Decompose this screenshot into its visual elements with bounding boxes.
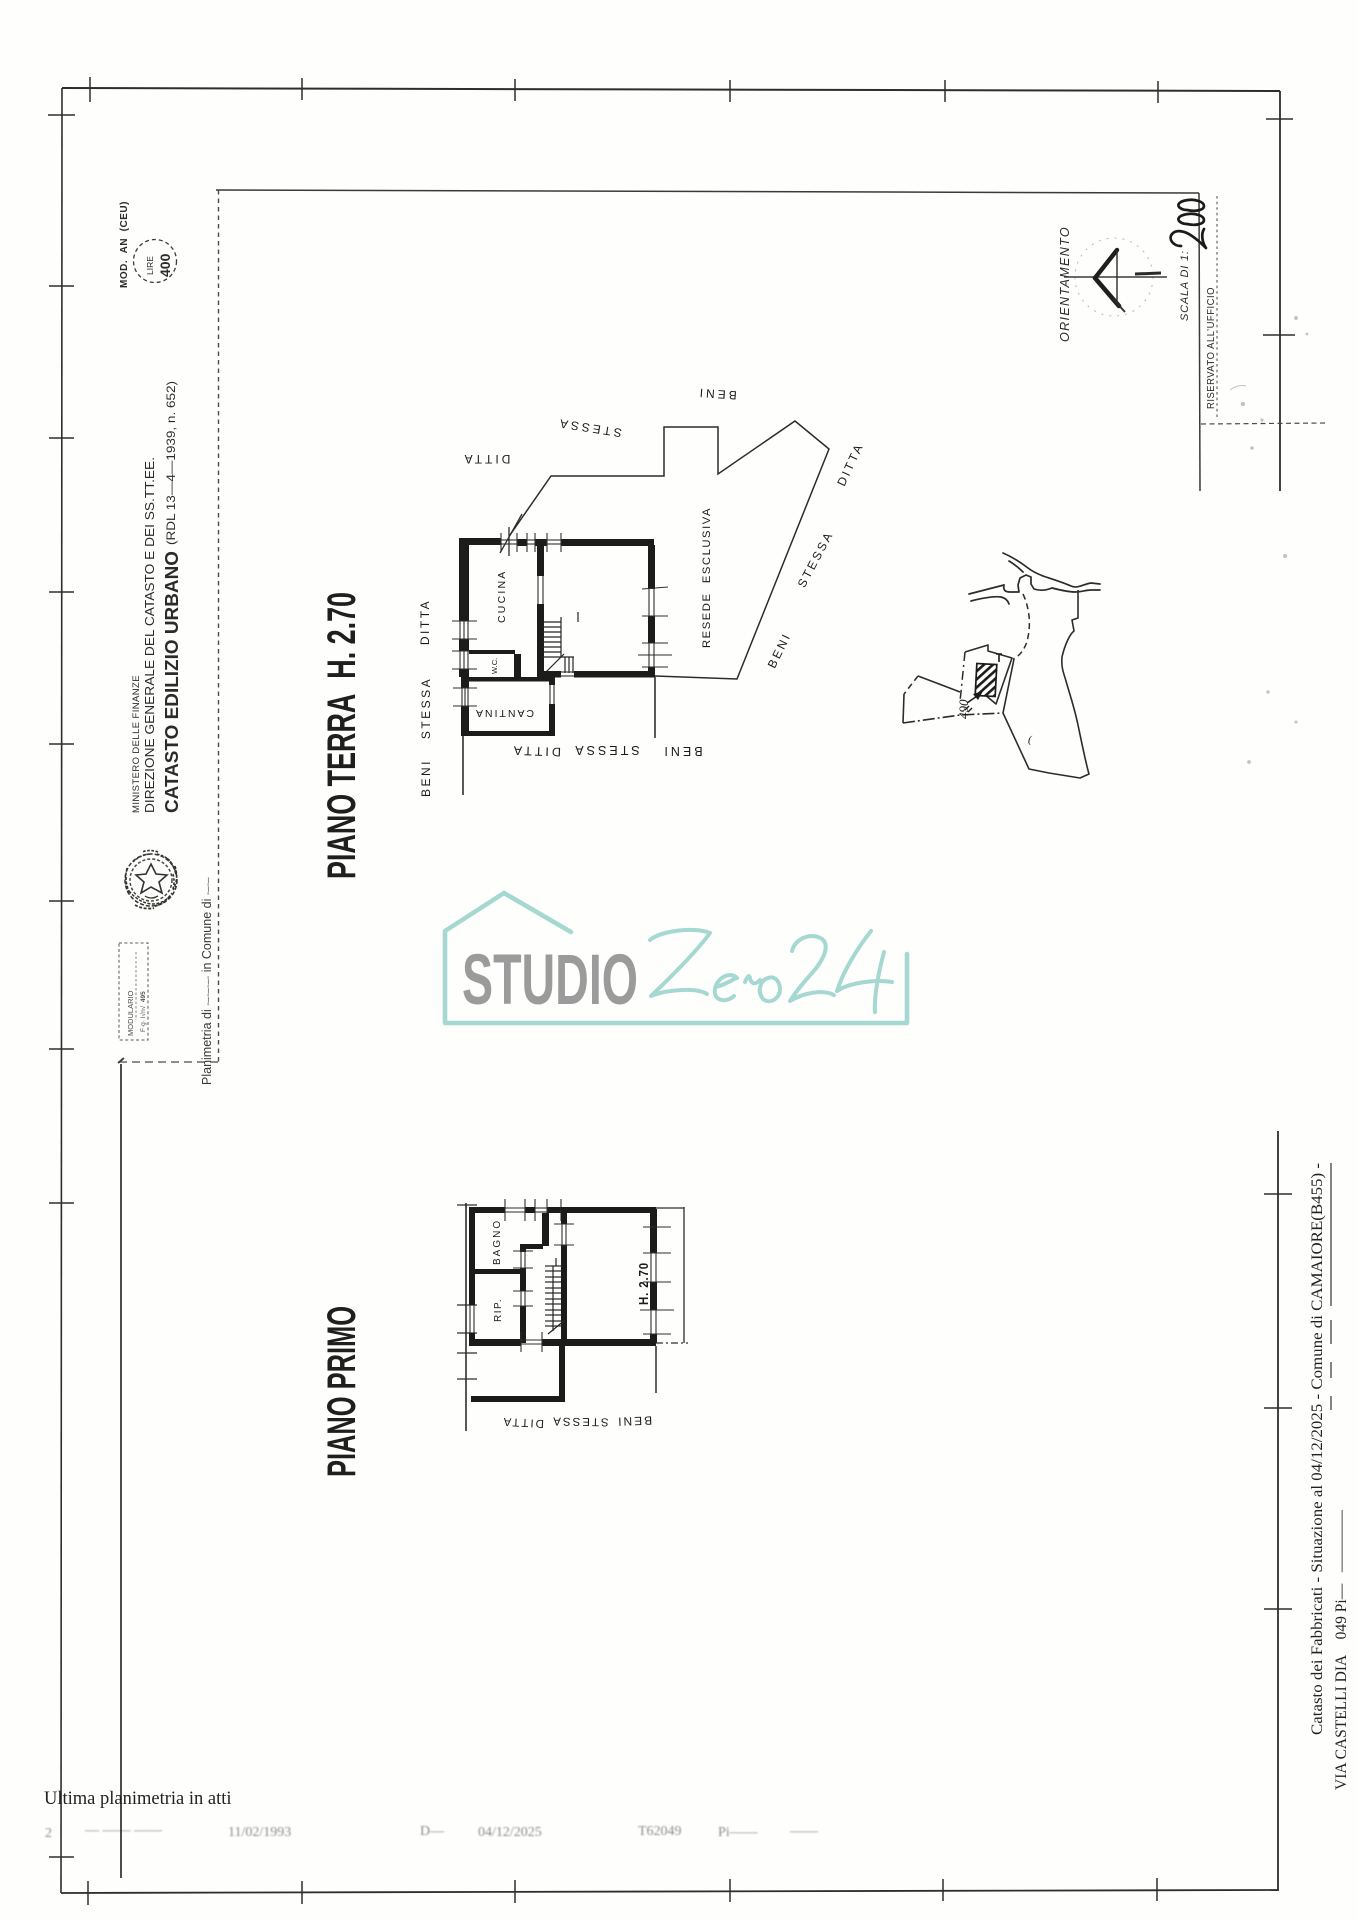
svg-text:——: —— [789,1824,819,1839]
svg-text:400: 400 [157,253,173,277]
svg-text:DITTA: DITTA [418,599,432,645]
svg-text:ORIENTAMENTO: ORIENTAMENTO [1057,226,1072,342]
svg-text:CATASTO EDILIZIO URBANO: CATASTO EDILIZIO URBANO [161,551,182,813]
svg-text:Catasto dei Fabbricati - Situa: Catasto dei Fabbricati - Situazione al 0… [1309,1163,1326,1735]
svg-text:MOD. AN (CEU): MOD. AN (CEU) [119,201,130,288]
svg-text:H. 2.70: H. 2.70 [636,1262,651,1305]
svg-text:STESSA: STESSA [419,677,433,739]
svg-text:BAGNO: BAGNO [492,1219,503,1265]
svg-text:MODULARIO: MODULARIO [126,990,135,1036]
svg-text:(RDL 13—4—1939, n. 652): (RDL 13—4—1939, n. 652) [164,381,178,545]
svg-text:W.C.: W.C. [490,658,499,674]
svg-text:D—: D— [420,1824,445,1839]
svg-text:PIANO PRIMO: PIANO PRIMO [320,1306,364,1477]
svg-text:STESSA: STESSA [572,743,639,757]
svg-text:— —— ——: — —— —— [84,1823,163,1838]
svg-text:DITTA: DITTA [501,1415,544,1429]
svg-text:MINISTERO DELLE FINANZE: MINISTERO DELLE FINANZE [131,675,142,813]
svg-text:LIRE: LIRE [145,256,155,275]
svg-text:Planimetria di -–-–-–- in Comu: Planimetria di -–-–-–- in Comune di -–-– [200,877,214,1085]
svg-text:RIP.: RIP. [493,1298,504,1322]
svg-text:490: 490 [956,699,971,719]
svg-text:04/12/2025: 04/12/2025 [478,1825,542,1840]
svg-text:DIREZIONE GENERALE DEL CATASTO: DIREZIONE GENERALE DEL CATASTO E DEI SS.… [143,457,157,813]
svg-text:RESEDE ESCLUSIVA: RESEDE ESCLUSIVA [701,507,713,648]
svg-text:Ultima planimetria in atti: Ultima planimetria in atti [44,1789,232,1809]
svg-text:CANTINA: CANTINA [474,707,534,719]
svg-text:T62049: T62049 [638,1824,682,1839]
svg-text:BENI: BENI [419,759,433,797]
svg-text:STESSA: STESSA [551,1414,609,1427]
svg-text:BENI: BENI [696,386,737,403]
svg-text:2: 2 [45,1826,52,1841]
svg-text:BENI: BENI [616,1413,652,1428]
svg-text:F·g· I√n√ 495: F·g· I√n√ 495 [139,991,147,1032]
svg-text:STUDIO: STUDIO [462,941,638,1020]
svg-text:BENI: BENI [661,744,702,758]
svg-text:DITTA: DITTA [462,452,511,466]
svg-text:PIANO TERRA H. 2.70: PIANO TERRA H. 2.70 [320,592,364,879]
svg-text:CUCINA: CUCINA [496,570,508,623]
svg-text:11/02/1993: 11/02/1993 [228,1825,291,1840]
svg-text:Pi——: Pi—— [718,1825,759,1840]
svg-text:SCALA DI 1:: SCALA DI 1: [1179,250,1191,321]
svg-text:VIA CASTELLI DIA 049 Pi—: VIA CASTELLI DIA 049 Pi— ———— [1333,1510,1350,1790]
svg-text:DITTA: DITTA [511,743,562,759]
svg-text:RISERVATO ALL’UFFICIO: RISERVATO ALL’UFFICIO [1205,287,1217,409]
